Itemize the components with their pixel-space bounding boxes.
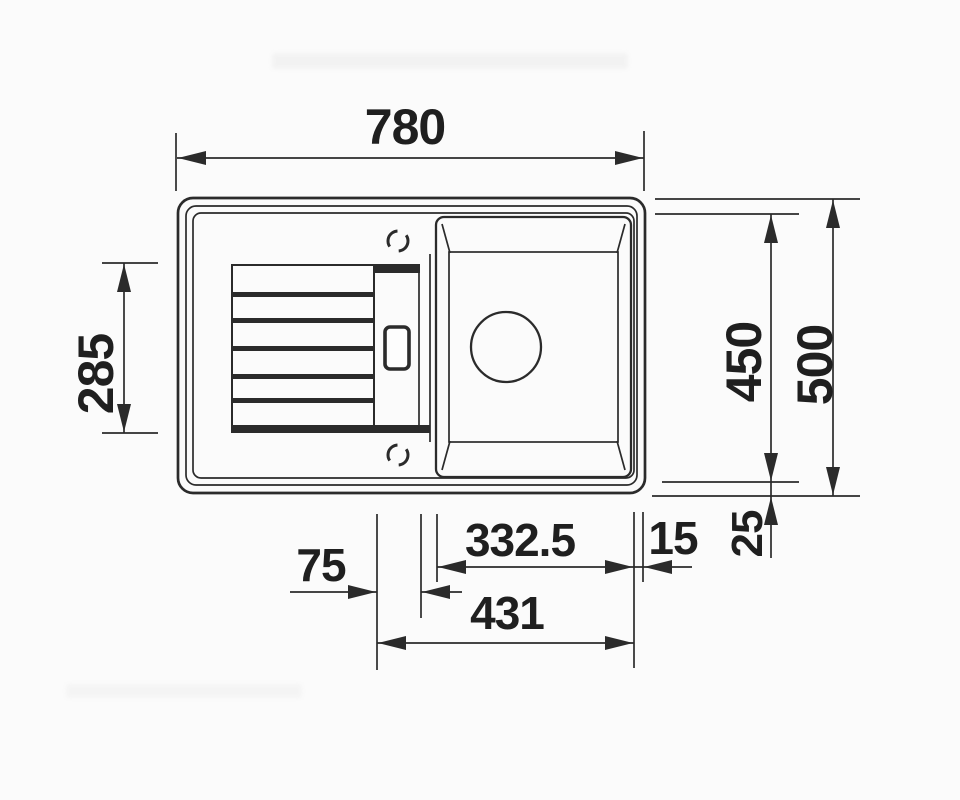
bowl-inner-edge <box>449 252 618 442</box>
dim-780-label: 780 <box>365 102 445 152</box>
dim-332-5-label: 332.5 <box>465 517 575 563</box>
overflow-window <box>385 327 409 369</box>
dim-285-label: 285 <box>71 334 121 414</box>
dim-450-label: 450 <box>719 322 769 402</box>
watermark-remnant <box>272 53 628 69</box>
center-step <box>374 254 430 442</box>
dim-75-label: 75 <box>296 542 345 588</box>
drain-circle <box>471 312 541 382</box>
bowl-corner-line <box>442 224 450 253</box>
drainboard-bottom-band <box>233 425 430 433</box>
bowl-corner-line <box>442 441 450 470</box>
bowl-corner-line <box>617 441 625 470</box>
sink-outline <box>178 198 645 493</box>
bowl-corner-line <box>617 224 625 253</box>
bowl <box>436 217 631 477</box>
dim-431-label: 431 <box>470 590 544 636</box>
dim-15-label: 15 <box>648 515 697 561</box>
dim-500-label: 500 <box>790 325 840 405</box>
dim-25-label: 25 <box>726 511 770 558</box>
tap-hole-marker-top <box>384 227 412 255</box>
sink-rim-edge <box>186 206 637 485</box>
sink-technical-drawing: 780 285 450 500 25 332.5 15 75 431 <box>0 0 960 800</box>
bowl-outer-edge <box>436 217 631 477</box>
step-top-band <box>374 264 420 273</box>
sink-outer-edge <box>178 198 645 493</box>
tap-hole-marker-bottom <box>384 441 412 469</box>
watermark-remnant <box>66 684 302 698</box>
